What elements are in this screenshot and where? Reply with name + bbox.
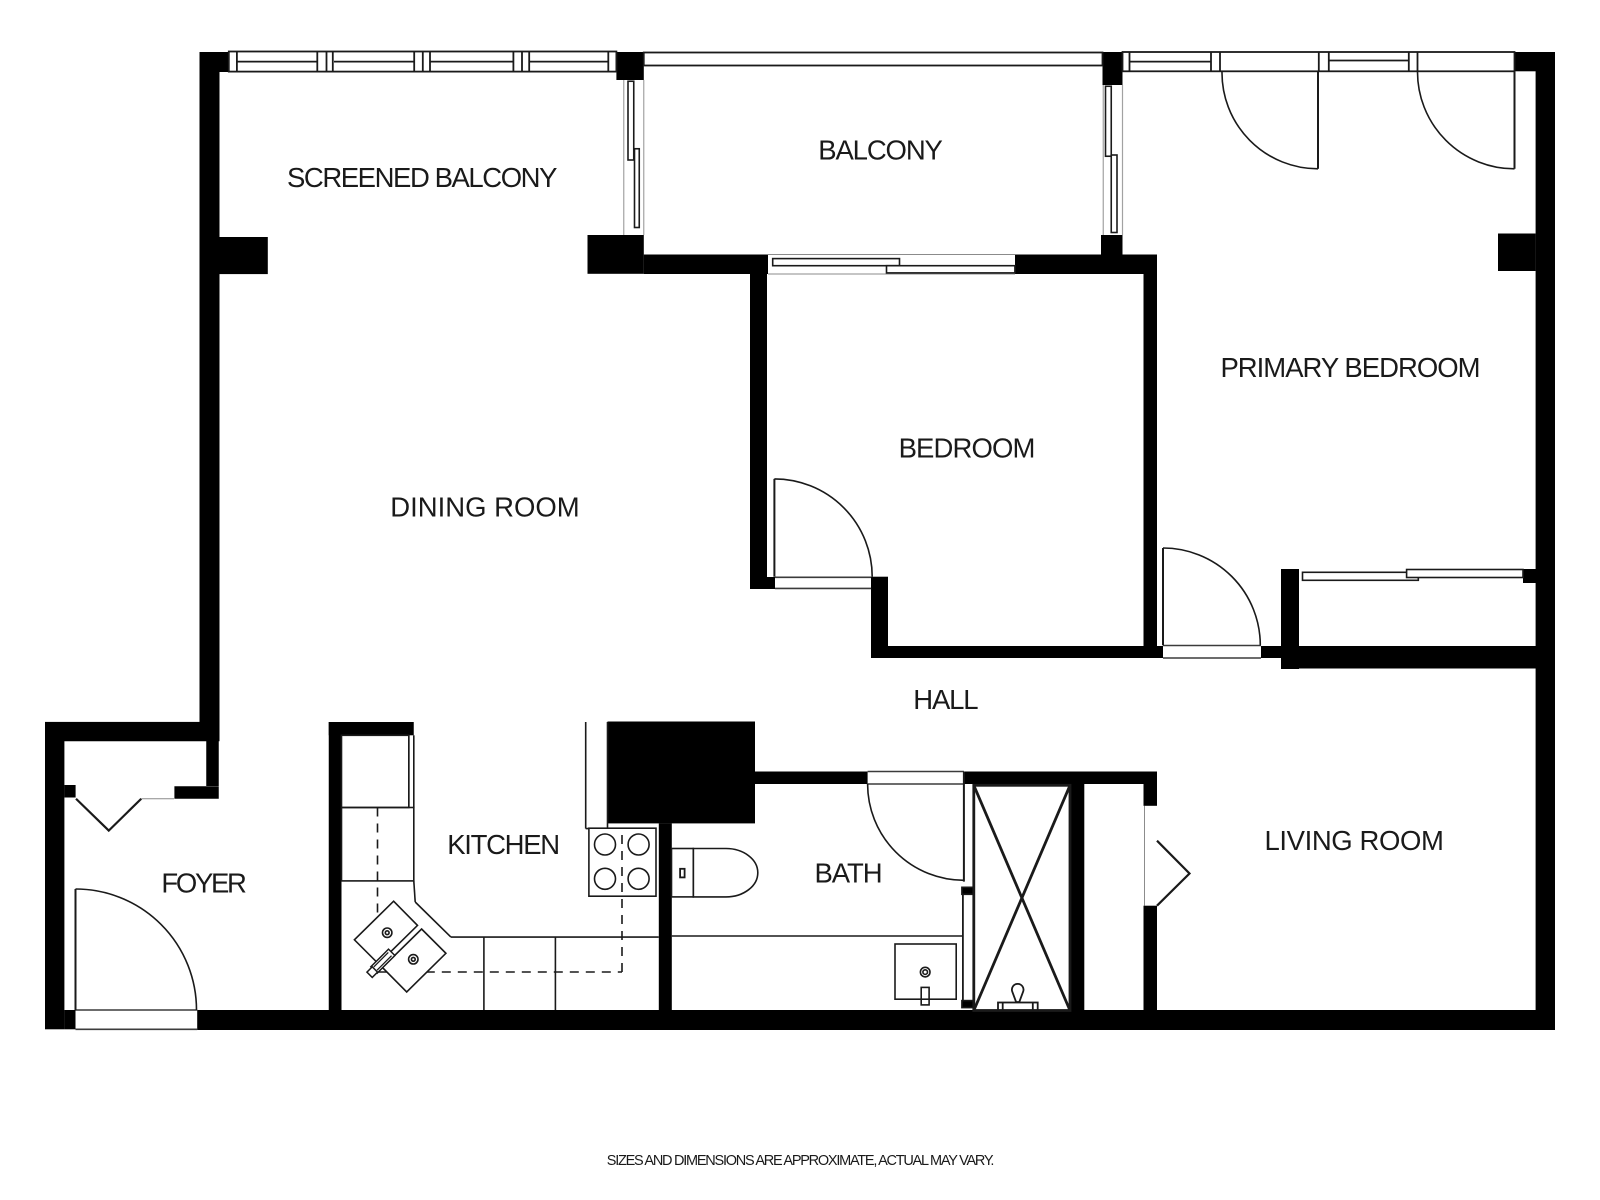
svg-text:KITCHEN: KITCHEN bbox=[447, 829, 559, 860]
svg-text:DINING ROOM: DINING ROOM bbox=[390, 492, 579, 523]
svg-text:HALL: HALL bbox=[913, 684, 978, 715]
svg-text:BEDROOM: BEDROOM bbox=[899, 433, 1035, 464]
svg-text:BALCONY: BALCONY bbox=[818, 135, 942, 166]
svg-text:PRIMARY BEDROOM: PRIMARY BEDROOM bbox=[1220, 352, 1479, 383]
svg-text:FOYER: FOYER bbox=[161, 868, 246, 899]
svg-text:SIZES AND DIMENSIONS ARE APPRO: SIZES AND DIMENSIONS ARE APPROXIMATE, AC… bbox=[607, 1153, 994, 1169]
svg-text:LIVING ROOM: LIVING ROOM bbox=[1265, 825, 1444, 856]
svg-text:SCREENED BALCONY: SCREENED BALCONY bbox=[287, 162, 557, 193]
svg-text:BATH: BATH bbox=[815, 858, 882, 889]
